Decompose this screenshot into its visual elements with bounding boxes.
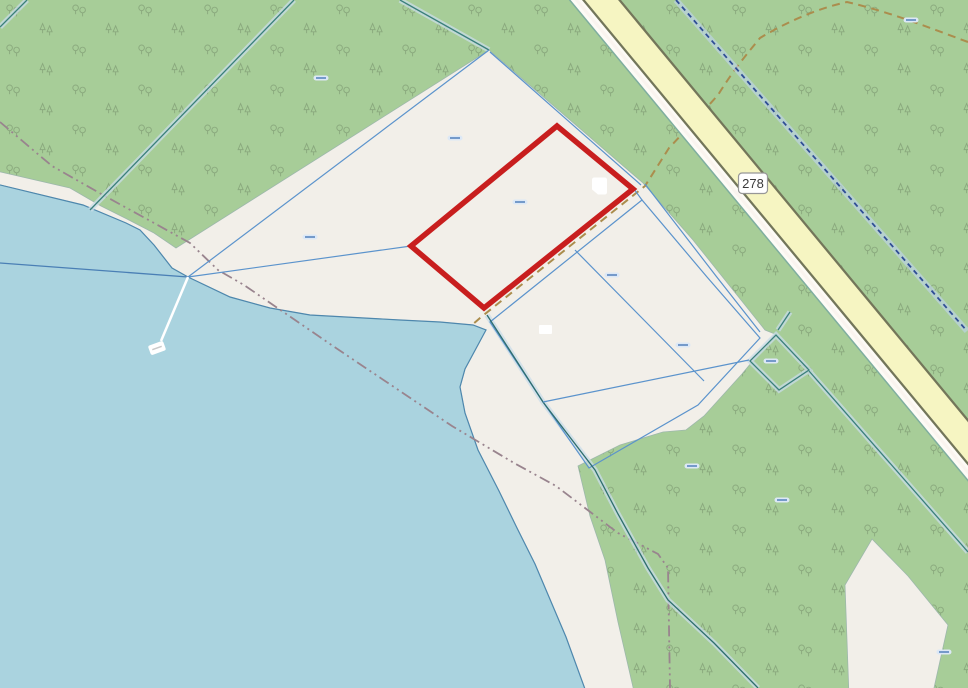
svg-text:278: 278 xyxy=(742,176,764,191)
